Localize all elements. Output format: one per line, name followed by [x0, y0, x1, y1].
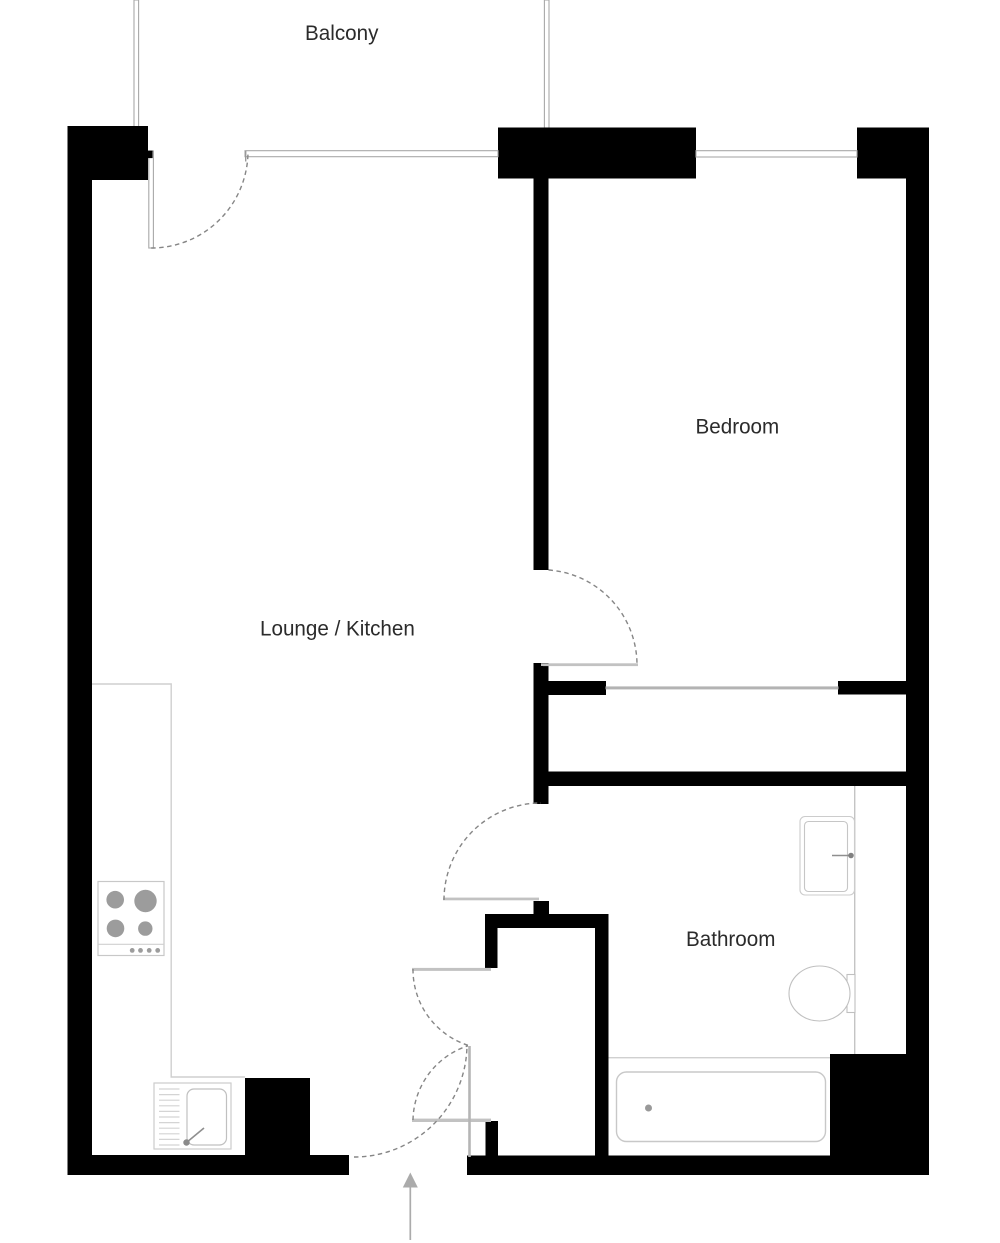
svg-text:Balcony: Balcony	[305, 22, 379, 45]
svg-text:Bedroom: Bedroom	[696, 415, 780, 438]
svg-text:Bathroom: Bathroom	[686, 928, 775, 951]
svg-text:Lounge / Kitchen: Lounge / Kitchen	[260, 617, 415, 640]
